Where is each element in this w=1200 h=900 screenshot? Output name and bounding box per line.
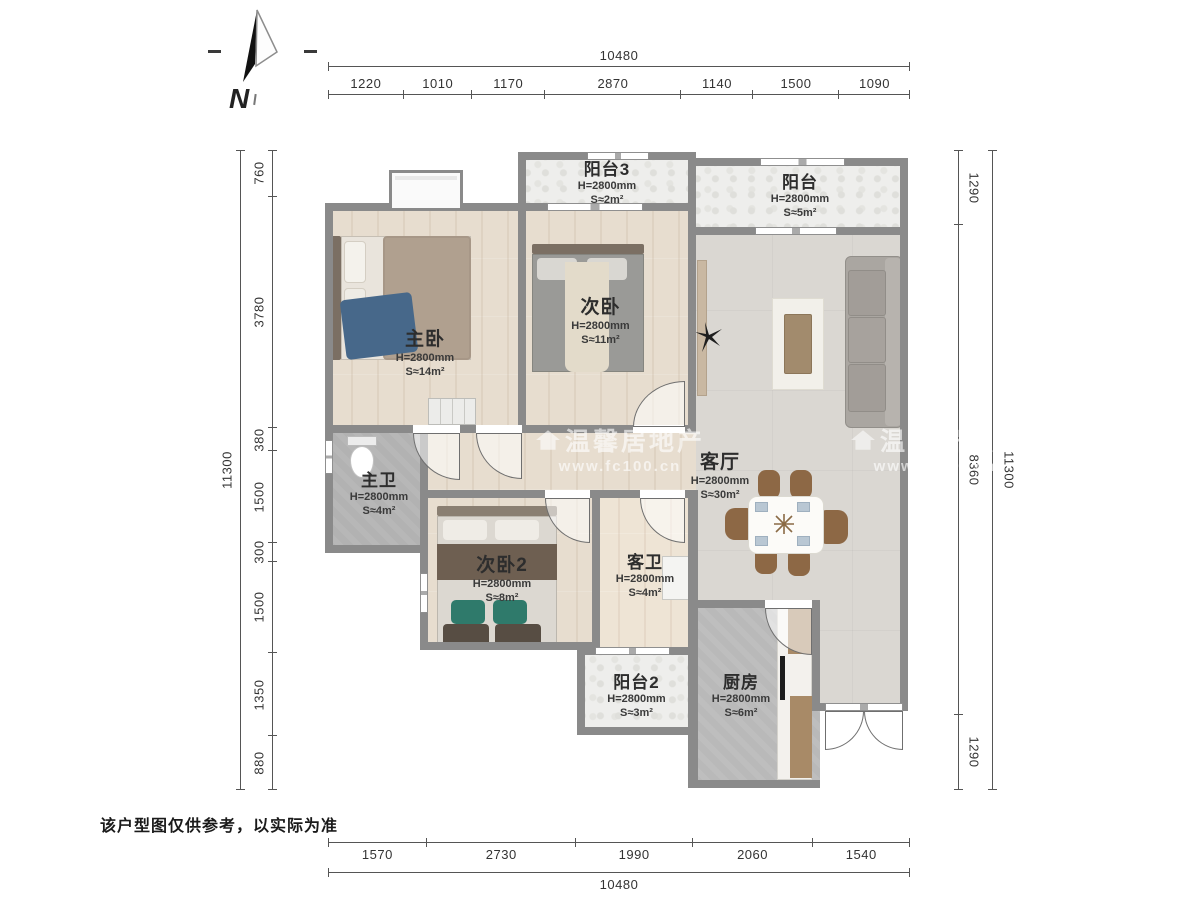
wall bbox=[688, 780, 820, 788]
dim-bottom-segments: 1570 2730 1990 2060 1540 bbox=[328, 842, 910, 862]
window bbox=[755, 227, 837, 235]
door-opening bbox=[545, 490, 590, 498]
dim-right-total: 11300 bbox=[992, 150, 1025, 790]
room-label-bedroom3: 次卧2 H=2800mm S≈8m² bbox=[447, 554, 557, 605]
room-label-bedroom2: 次卧 H=2800mm S≈11m² bbox=[543, 296, 658, 347]
bedroom3-bed-headboard bbox=[437, 506, 557, 516]
dim-value: 1540 bbox=[813, 843, 910, 862]
dim-value: 1220 bbox=[328, 76, 404, 94]
dim-value: 1140 bbox=[681, 76, 753, 94]
dim-right-segments: 1290 8360 1290 bbox=[958, 150, 989, 790]
dining-chair bbox=[822, 510, 848, 544]
dim-value: 1290 bbox=[967, 172, 982, 203]
door-opening bbox=[765, 600, 812, 608]
dim-value: 1290 bbox=[967, 737, 982, 768]
wall bbox=[577, 727, 698, 735]
dim-value: 10480 bbox=[328, 48, 910, 66]
dim-top-segments: 1220 1010 1170 2870 1140 1500 1090 bbox=[328, 76, 910, 95]
bedroom3-bed-pillow bbox=[495, 520, 539, 540]
window bbox=[325, 440, 333, 474]
wall bbox=[420, 642, 600, 650]
bay-window-sill bbox=[395, 176, 457, 180]
compass-needle-light bbox=[256, 10, 277, 66]
compass-dash-right bbox=[304, 50, 317, 53]
north-label: N bbox=[229, 83, 250, 114]
window bbox=[420, 573, 428, 613]
dim-value: 1170 bbox=[472, 76, 545, 94]
sofa-cushion bbox=[848, 364, 886, 412]
entry-door-arc bbox=[825, 711, 864, 750]
sofa-cushion bbox=[848, 317, 886, 363]
dim-value: 380 bbox=[252, 428, 267, 451]
dim-value: 8360 bbox=[967, 455, 982, 486]
compass-needle-dark bbox=[243, 10, 257, 82]
coffee-table bbox=[784, 314, 812, 374]
floorplan-page: N 10480 1220 1010 1170 2870 1140 1500 10… bbox=[0, 0, 1200, 900]
dim-value: 11300 bbox=[220, 451, 235, 489]
room-label-master-bath: 主卫 H=2800mm S≈4m² bbox=[333, 470, 425, 519]
dim-left-total: 11300 bbox=[214, 150, 241, 790]
toilet bbox=[347, 436, 377, 446]
sofa-cushion bbox=[848, 270, 886, 316]
dim-value: 2060 bbox=[693, 843, 813, 862]
dim-top-total: 10480 bbox=[328, 48, 910, 67]
wall bbox=[900, 158, 908, 711]
dim-value: 10480 bbox=[328, 873, 910, 892]
door-opening bbox=[476, 425, 522, 433]
entry-door-leaves bbox=[825, 703, 903, 711]
dim-value: 1500 bbox=[252, 592, 267, 623]
bedroom3-bed-pillow bbox=[443, 520, 487, 540]
dim-value: 2730 bbox=[427, 843, 576, 862]
floorplan: 阳台3 H=2800mm S≈2m² 阳台 H=2800mm S≈5m² 主卧 … bbox=[325, 148, 910, 798]
compass-dash-left bbox=[208, 50, 221, 53]
place-setting bbox=[797, 536, 810, 546]
window bbox=[760, 158, 845, 166]
dim-value: 1010 bbox=[404, 76, 472, 94]
wall bbox=[812, 600, 820, 711]
dim-value: 3780 bbox=[252, 297, 267, 328]
dim-value: 880 bbox=[252, 751, 267, 774]
kitchen-cabinet bbox=[790, 696, 812, 778]
wall bbox=[325, 545, 428, 553]
place-setting bbox=[797, 502, 810, 512]
dim-value: 1990 bbox=[576, 843, 693, 862]
floor-hallway bbox=[420, 425, 696, 490]
dim-value: 1500 bbox=[753, 76, 839, 94]
table-centerpiece bbox=[772, 512, 796, 536]
room-label-balcony: 阳台 H=2800mm S≈5m² bbox=[692, 172, 908, 221]
ceiling-fan-icon bbox=[693, 320, 725, 354]
compass-tick bbox=[253, 94, 257, 105]
place-setting bbox=[755, 536, 768, 546]
bay-window bbox=[389, 170, 463, 211]
disclaimer-text: 该户型图仅供参考，以实际为准 bbox=[100, 812, 338, 836]
room-label-balcony3: 阳台3 H=2800mm S≈2m² bbox=[522, 159, 692, 208]
window bbox=[595, 647, 670, 655]
dim-value: 1500 bbox=[252, 482, 267, 513]
place-setting bbox=[755, 502, 768, 512]
bedroom2-bed-headboard bbox=[532, 244, 644, 254]
wall bbox=[592, 490, 600, 650]
dim-value: 1090 bbox=[839, 76, 910, 94]
room-label-master-bedroom: 主卧 H=2800mm S≈14m² bbox=[345, 328, 505, 379]
dim-value: 1570 bbox=[328, 843, 427, 862]
door-opening bbox=[413, 425, 460, 433]
room-label-living-room: 客厅 H=2800mm S≈30m² bbox=[677, 451, 763, 502]
dim-bottom-total: 10480 bbox=[328, 872, 910, 892]
entry-door-arc bbox=[864, 711, 903, 750]
dim-left-segments: 760 3780 380 1500 300 1500 1350 880 bbox=[246, 150, 273, 790]
wall bbox=[688, 490, 698, 788]
room-label-balcony2: 阳台2 H=2800mm S≈3m² bbox=[579, 672, 694, 721]
north-compass-icon: N bbox=[205, 6, 320, 118]
room-label-kitchen: 厨房 H=2800mm S≈6m² bbox=[698, 672, 784, 721]
sofa-back bbox=[885, 258, 901, 426]
room-label-guest-bath: 客卫 H=2800mm S≈4m² bbox=[603, 552, 687, 601]
hall-wardrobe bbox=[428, 398, 476, 425]
dim-value: 1350 bbox=[252, 679, 267, 710]
dim-value: 2870 bbox=[545, 76, 681, 94]
wall bbox=[325, 203, 333, 433]
dim-value: 11300 bbox=[1002, 451, 1017, 489]
master-bed-pillow bbox=[344, 241, 366, 283]
dim-value: 760 bbox=[252, 162, 267, 185]
dim-value: 300 bbox=[252, 541, 267, 564]
